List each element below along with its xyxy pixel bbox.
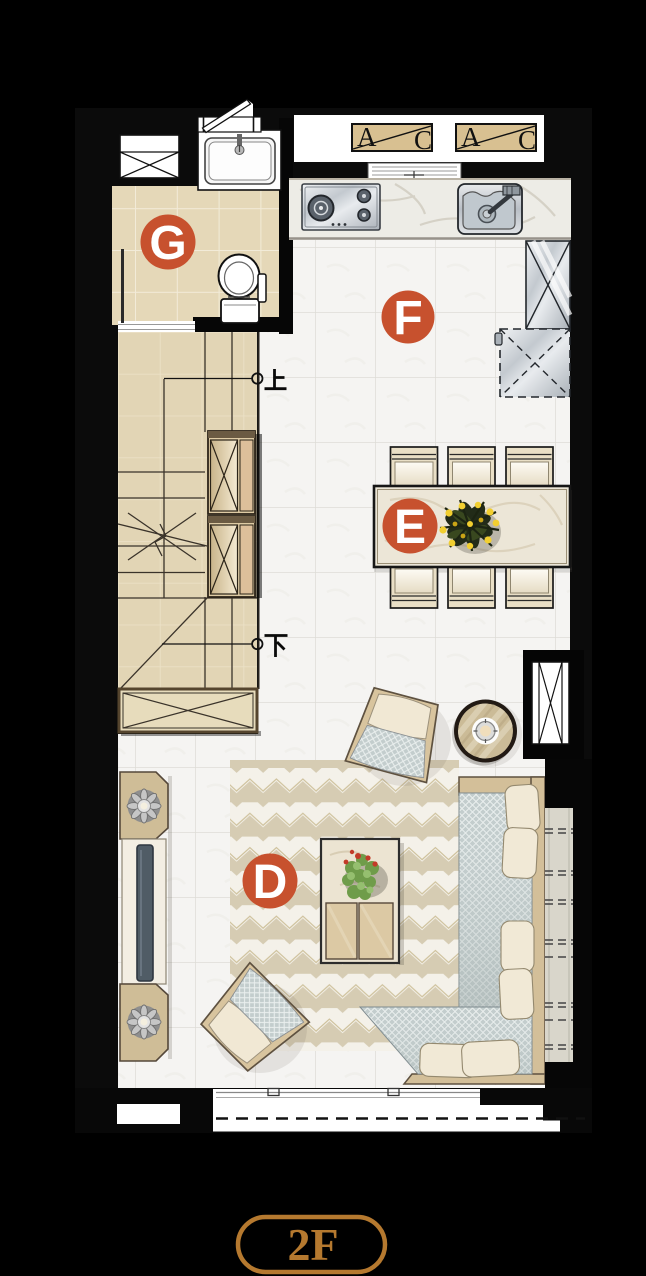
svg-text:F: F bbox=[393, 292, 422, 345]
svg-text:C: C bbox=[414, 125, 432, 155]
svg-text:2F: 2F bbox=[287, 1219, 338, 1270]
svg-text:A: A bbox=[461, 122, 481, 152]
svg-text:E: E bbox=[394, 501, 426, 554]
svg-text:C: C bbox=[518, 125, 536, 155]
svg-text:D: D bbox=[253, 856, 288, 909]
svg-text:G: G bbox=[149, 217, 186, 270]
svg-text:A: A bbox=[357, 122, 377, 152]
